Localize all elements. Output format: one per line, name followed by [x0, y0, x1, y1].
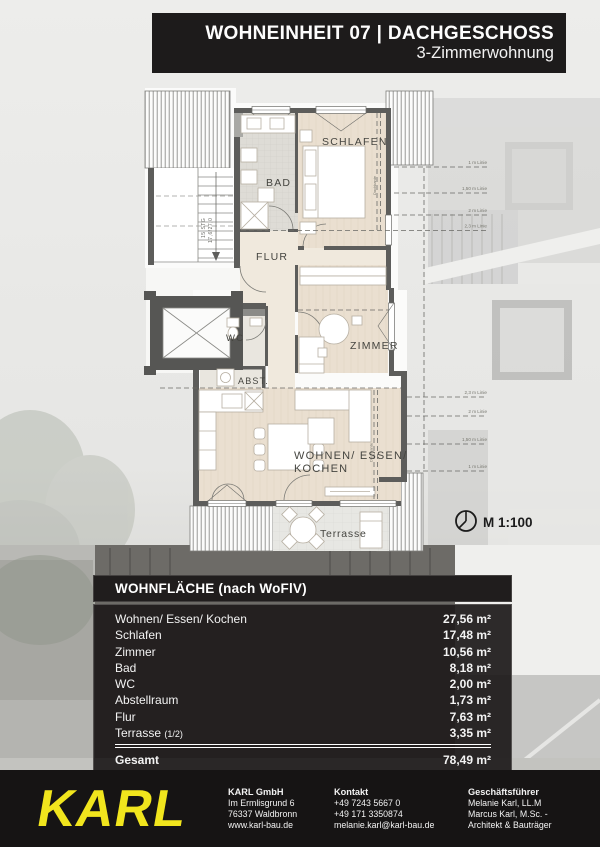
room-label-wc: WC	[226, 333, 244, 344]
footer-company: KARL GmbH Im Ermlisgrund 6 76337 Waldbro…	[228, 787, 334, 831]
footer-contact: Kontakt +49 7243 5667 0 +49 171 3350874 …	[334, 787, 468, 831]
roof-label-1m-bottom: 1 m Linie	[468, 464, 487, 469]
scale-indicator: M 1:100	[456, 511, 533, 531]
row-label: Flur	[115, 709, 136, 725]
stair-note-line1: 15 STG	[201, 218, 207, 238]
room-label-zimmer: ZIMMER	[350, 340, 399, 352]
roof-label-2m-top: 2 m Linie	[468, 208, 487, 213]
staircase: 15 STG 17,6/27,0	[154, 168, 234, 263]
table-row: Terrasse (1/2) 3,35 m²	[115, 725, 491, 741]
table-total-row: Gesamt 78,49 m²	[115, 751, 491, 769]
company-street: Im Ermlisgrund 6	[228, 798, 334, 809]
row-label-suffix: (1/2)	[164, 729, 183, 739]
contact-phone1: +49 7243 5667 0	[334, 798, 468, 809]
roof-label-150m-top: 1,50 m Linie	[462, 186, 487, 191]
stair-note-line2: 17,6/27,0	[208, 218, 214, 243]
company-name: KARL GmbH	[228, 787, 334, 798]
row-label: WC	[115, 676, 135, 692]
row-value: 8,18 m²	[450, 660, 491, 676]
room-label-terrasse: Terrasse	[320, 528, 367, 540]
management-line2: Marcus Karl, M.Sc. -	[468, 809, 588, 820]
room-label-schlafen: SCHLAFEN	[322, 136, 388, 148]
karl-logo: KARL	[33, 783, 227, 835]
contact-phone2: +49 171 3350874	[334, 809, 468, 820]
area-table: WOHNFLÄCHE (nach WoFlV) Wohnen/ Essen/ K…	[93, 575, 512, 777]
room-label-wohnen-line1: WOHNEN/ ESSEN/	[294, 450, 407, 462]
row-value: 27,56 m²	[443, 611, 491, 627]
table-separator	[115, 744, 491, 748]
contact-title: Kontakt	[334, 787, 468, 798]
header-bar: WOHNEINHEIT 07 | DACHGESCHOSS 3-Zimmerwo…	[152, 13, 566, 73]
row-value: 7,63 m²	[450, 709, 491, 725]
management-line3: Architekt & Bauträger	[468, 820, 588, 831]
footer-bar: KARL KARL GmbH Im Ermlisgrund 6 76337 Wa…	[0, 770, 600, 847]
table-row: Abstellraum 1,73 m²	[115, 692, 491, 708]
row-label: Wohnen/ Essen/ Kochen	[115, 611, 247, 627]
company-city: 76337 Waldbronn	[228, 809, 334, 820]
contact-email: melanie.karl@karl-bau.de	[334, 820, 468, 831]
total-value: 78,49 m²	[443, 751, 491, 769]
row-label: Bad	[115, 660, 136, 676]
roof-label-23m-bottom: 2,3 m Linie	[465, 390, 488, 395]
row-label: Schlafen	[115, 627, 162, 643]
roof-edge-label-schlafen: Dachkante	[372, 175, 377, 195]
row-value: 2,00 m²	[450, 676, 491, 692]
total-label: Gesamt	[115, 751, 159, 769]
row-value: 10,56 m²	[443, 644, 491, 660]
row-label: Zimmer	[115, 644, 156, 660]
row-value: 1,73 m²	[450, 692, 491, 708]
area-table-body: Wohnen/ Essen/ Kochen 27,56 m² Schlafen …	[93, 604, 512, 777]
room-label-wohnen-line2: KOCHEN	[294, 463, 348, 475]
management-title: Geschäftsführer	[468, 787, 588, 798]
room-label-abst: ABST.	[238, 376, 269, 386]
management-line1: Melanie Karl, LL.M	[468, 798, 588, 809]
room-label-flur: FLUR	[256, 251, 288, 263]
row-label: Terrasse (1/2)	[115, 725, 183, 742]
row-label: Abstellraum	[115, 692, 178, 708]
roof-label-150m-bottom: 1,50 m Linie	[462, 437, 487, 442]
table-row: Wohnen/ Essen/ Kochen 27,56 m²	[115, 611, 491, 627]
company-website: www.karl-bau.de	[228, 820, 334, 831]
table-row: Schlafen 17,48 m²	[115, 627, 491, 643]
page-title: WOHNEINHEIT 07 | DACHGESCHOSS	[205, 23, 554, 44]
table-row: WC 2,00 m²	[115, 676, 491, 692]
table-row: Flur 7,63 m²	[115, 709, 491, 725]
roof-label-2m-bottom: 2 m Linie	[468, 409, 487, 414]
row-value: 3,35 m²	[450, 725, 491, 741]
table-row: Bad 8,18 m²	[115, 660, 491, 676]
table-row: Zimmer 10,56 m²	[115, 644, 491, 660]
footer-management: Geschäftsführer Melanie Karl, LL.M Marcu…	[468, 787, 588, 831]
row-value: 17,48 m²	[443, 627, 491, 643]
roof-label-23m-top: 2,3 m Linie	[465, 224, 488, 229]
page-subtitle: 3-Zimmerwohnung	[416, 44, 554, 63]
scale-label: M 1:100	[483, 515, 533, 530]
room-label-bad: BAD	[266, 177, 291, 189]
area-table-title: WOHNFLÄCHE (nach WoFlV)	[93, 575, 512, 602]
roof-label-1m-top: 1 m Linie	[468, 160, 487, 165]
